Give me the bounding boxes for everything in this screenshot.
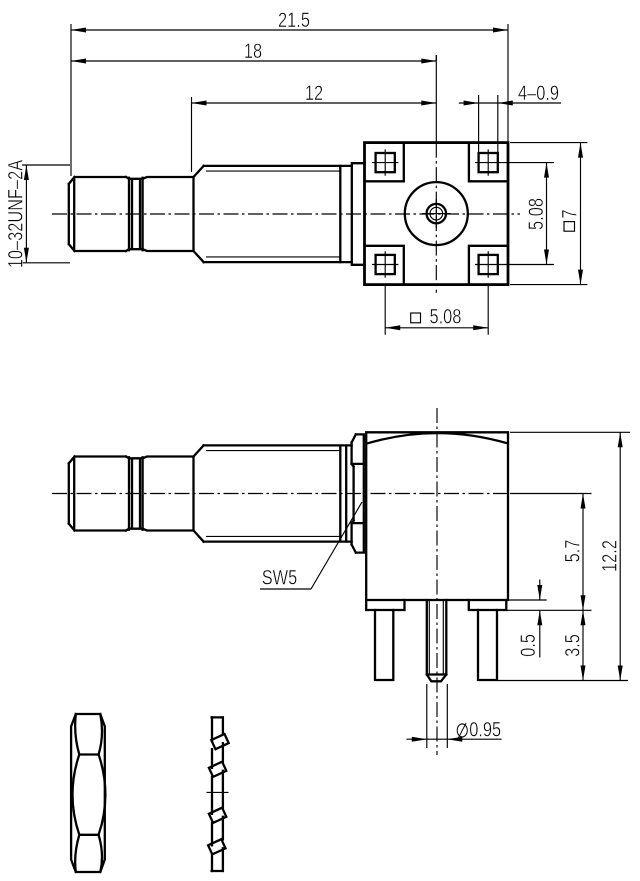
svg-text:18: 18 (244, 39, 262, 62)
svg-text:5.7: 5.7 (560, 540, 583, 563)
svg-text:SW5: SW5 (262, 566, 297, 589)
svg-text:3.5: 3.5 (560, 634, 583, 657)
svg-text:10–32UNF–2A: 10–32UNF–2A (4, 159, 27, 268)
svg-text:5.08: 5.08 (524, 198, 547, 230)
svg-text:4–0.9: 4–0.9 (518, 81, 559, 104)
svg-text:5.08: 5.08 (430, 305, 462, 328)
svg-text:12.2: 12.2 (598, 540, 621, 572)
svg-text:21.5: 21.5 (278, 8, 310, 31)
svg-text:7: 7 (558, 209, 581, 218)
svg-text:0.5: 0.5 (516, 634, 539, 657)
svg-text:12: 12 (305, 81, 323, 104)
svg-text:0.95: 0.95 (469, 717, 501, 740)
